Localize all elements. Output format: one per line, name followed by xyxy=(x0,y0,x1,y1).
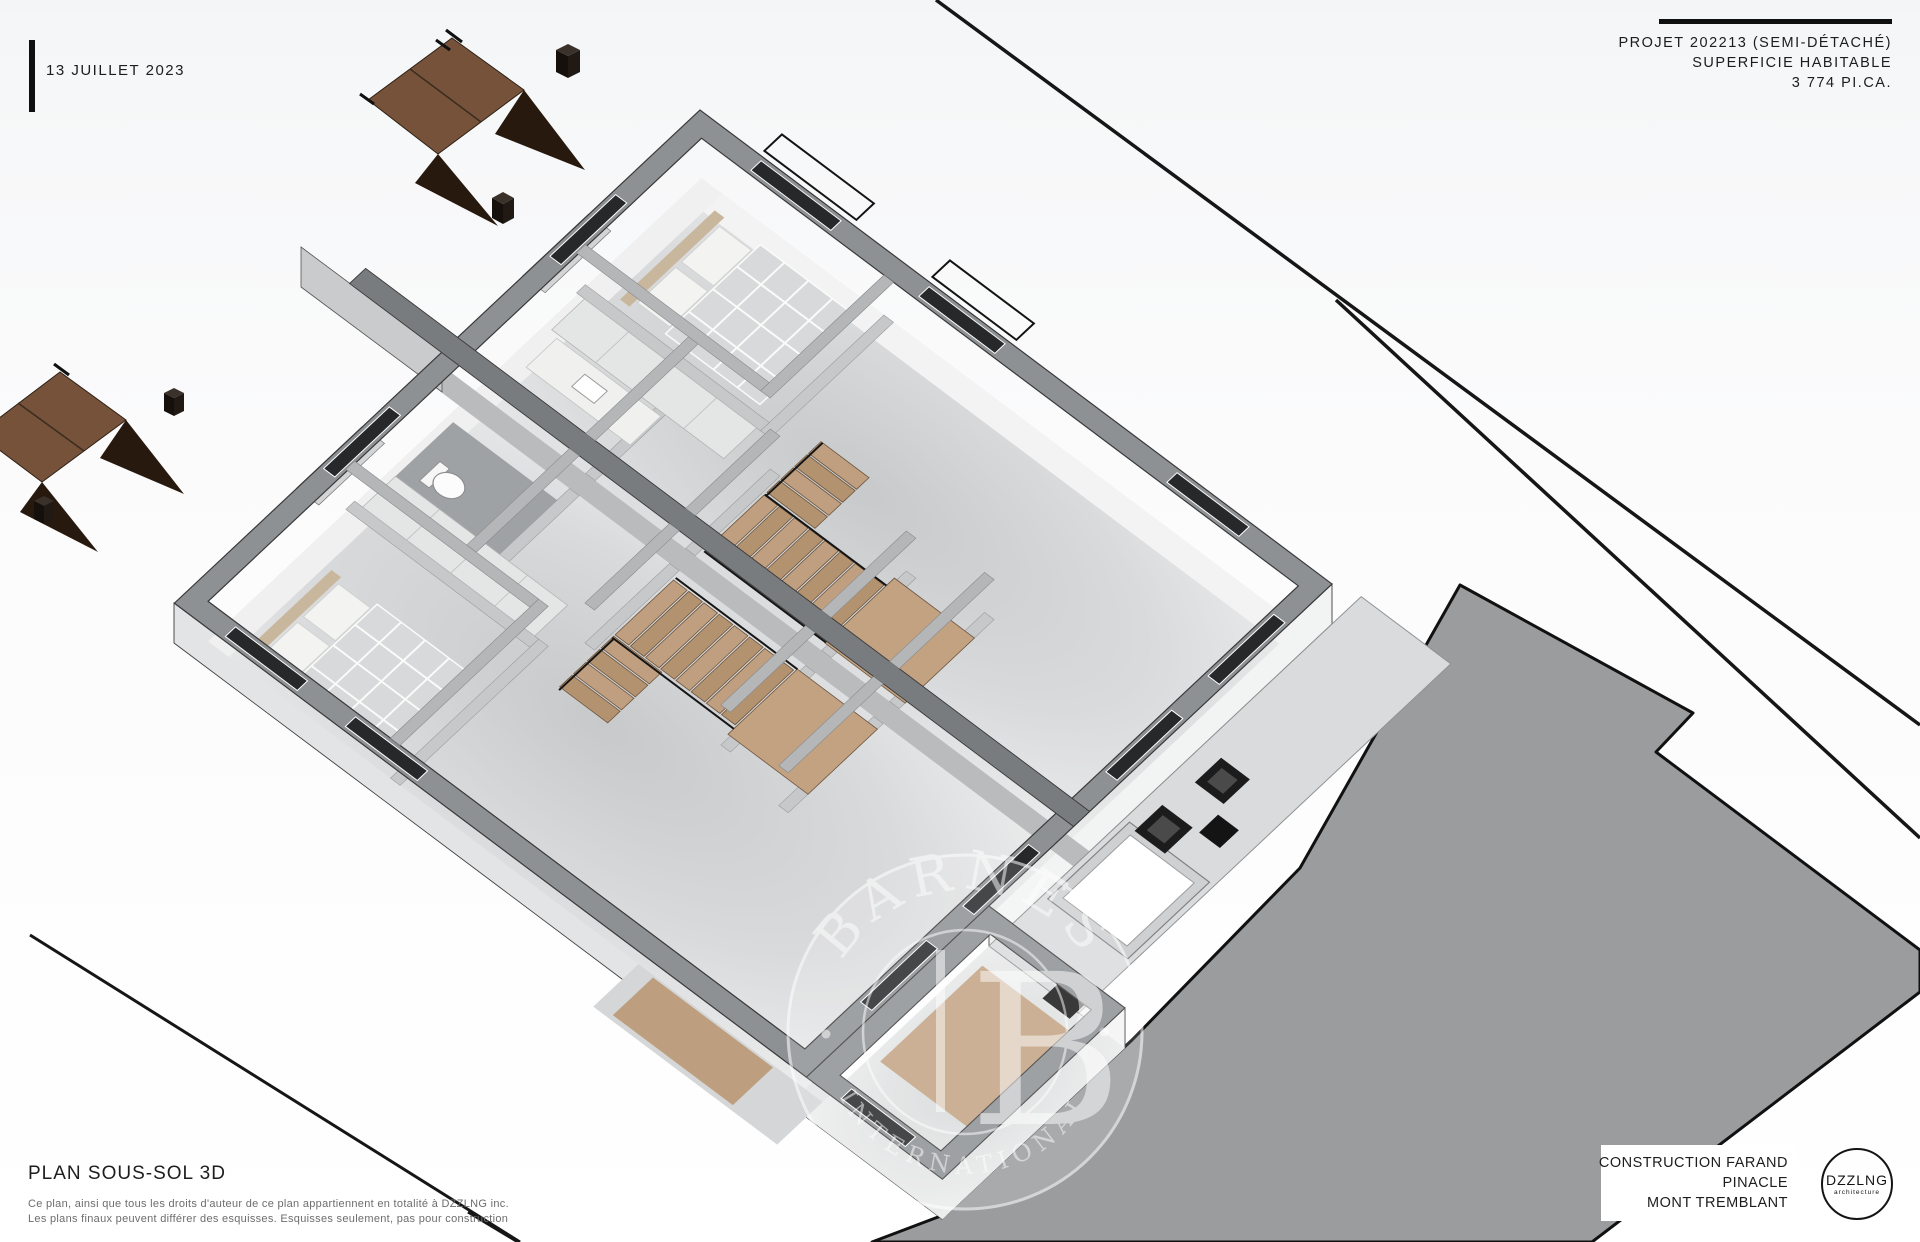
development-name: PINACLE xyxy=(1599,1173,1788,1193)
date-accent-bar xyxy=(29,40,35,112)
watermark-monogram: B xyxy=(969,929,1123,1174)
project-area-label: SUPERFICIE HABITABLE xyxy=(1618,53,1892,73)
watermark-monogram-bar xyxy=(936,950,945,1112)
plan-disclaimer: Ce plan, ainsi que tous les droits d'aut… xyxy=(28,1197,509,1226)
floor-plan-3d-render: BARNES INTERNATIONAL B xyxy=(0,0,1920,1242)
watermark-dot-left xyxy=(822,1030,831,1039)
black-cube xyxy=(492,192,514,224)
plan-title: PLAN SOUS-SOL 3D xyxy=(28,1163,226,1185)
dzzlng-logo-subtitle: architecture xyxy=(1834,1189,1880,1196)
project-accent-bar xyxy=(1659,19,1892,24)
floor-plan-canvas: BARNES INTERNATIONAL B 13 JUILLET 2023 P… xyxy=(0,0,1920,1242)
black-cube xyxy=(164,388,184,416)
project-number: PROJET 202213 (SEMI-DÉTACHÉ) xyxy=(1618,33,1892,53)
builder-name: CONSTRUCTION FARAND xyxy=(1599,1153,1788,1173)
plan-date: 13 JUILLET 2023 xyxy=(46,62,185,79)
black-cube xyxy=(556,44,580,78)
project-info: PROJET 202213 (SEMI-DÉTACHÉ) SUPERFICIE … xyxy=(1618,33,1892,93)
page: { "header": { "date": "13 JUILLET 2023",… xyxy=(0,0,1920,1242)
project-area-value: 3 774 PI.CA. xyxy=(1618,73,1892,93)
disclaimer-line-1: Ce plan, ainsi que tous les droits d'aut… xyxy=(28,1197,509,1212)
city-name: MONT TREMBLANT xyxy=(1599,1193,1788,1213)
disclaimer-line-2: Les plans finaux peuvent différer des es… xyxy=(28,1212,509,1227)
black-cube xyxy=(34,496,54,524)
dzzlng-logo-name: DZZLNG xyxy=(1826,1172,1888,1188)
firm-info: CONSTRUCTION FARAND PINACLE MONT TREMBLA… xyxy=(1599,1153,1788,1213)
dzzlng-logo: DZZLNG architecture xyxy=(1821,1148,1893,1220)
